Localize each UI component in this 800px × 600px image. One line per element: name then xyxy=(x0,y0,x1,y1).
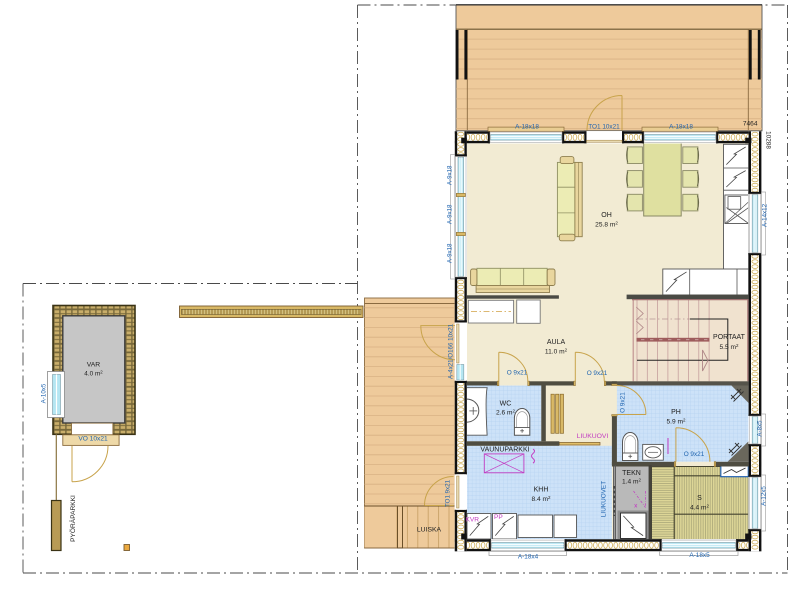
svg-text:O 9x21: O 9x21 xyxy=(587,370,608,377)
svg-text:PH: PH xyxy=(671,409,681,416)
svg-text:VAUNUPARKKI: VAUNUPARKKI xyxy=(480,447,529,454)
svg-text:O 9x21: O 9x21 xyxy=(620,392,627,413)
svg-text:KVR: KVR xyxy=(466,517,480,524)
svg-text:LUISKA: LUISKA xyxy=(417,527,442,534)
svg-text:LIUKUOVET: LIUKUOVET xyxy=(601,481,608,517)
svg-text:A-18x18: A-18x18 xyxy=(515,123,539,130)
svg-text:A-18x5: A-18x5 xyxy=(689,552,710,559)
svg-text:PP: PP xyxy=(494,514,503,521)
svg-text:A-12x5: A-12x5 xyxy=(761,486,768,506)
svg-text:TEKN: TEKN xyxy=(622,470,641,477)
svg-text:PYÖRÄPARKKI: PYÖRÄPARKKI xyxy=(69,495,77,542)
svg-text:A-9x18: A-9x18 xyxy=(447,204,454,224)
svg-text:OH: OH xyxy=(601,212,612,219)
svg-text:A-8x5: A-8x5 xyxy=(757,420,764,437)
svg-text:10288: 10288 xyxy=(765,131,772,149)
svg-text:11.0 m2: 11.0 m2 xyxy=(545,347,568,355)
svg-text:25.8 m2: 25.8 m2 xyxy=(595,220,618,228)
svg-text:O 9x21: O 9x21 xyxy=(507,370,528,377)
svg-text:O 9x21: O 9x21 xyxy=(684,451,705,458)
svg-text:A-10x5: A-10x5 xyxy=(41,383,48,403)
svg-text:7464: 7464 xyxy=(743,120,758,127)
svg-text:A-4x21/O166 10x21: A-4x21/O166 10x21 xyxy=(448,323,455,379)
svg-text:LIUKUOVI: LIUKUOVI xyxy=(577,433,609,440)
svg-text:WC: WC xyxy=(500,401,512,408)
svg-text:KHH: KHH xyxy=(534,487,549,494)
svg-text:TO1 9x21: TO1 9x21 xyxy=(445,479,452,507)
svg-text:PORTAAT: PORTAAT xyxy=(713,334,746,341)
svg-text:AULA: AULA xyxy=(547,339,566,346)
svg-text:A-9x18: A-9x18 xyxy=(447,165,454,185)
svg-text:VO 10x21: VO 10x21 xyxy=(78,436,108,443)
svg-text:A-14x12: A-14x12 xyxy=(762,203,769,227)
svg-text:A-18x4: A-18x4 xyxy=(518,553,539,560)
svg-text:S: S xyxy=(697,495,702,502)
svg-text:A-9x18: A-9x18 xyxy=(447,243,454,263)
svg-text:TO1 10x21: TO1 10x21 xyxy=(588,123,620,130)
svg-text:A-18x18: A-18x18 xyxy=(669,123,693,130)
svg-text:VAR: VAR xyxy=(87,362,101,369)
